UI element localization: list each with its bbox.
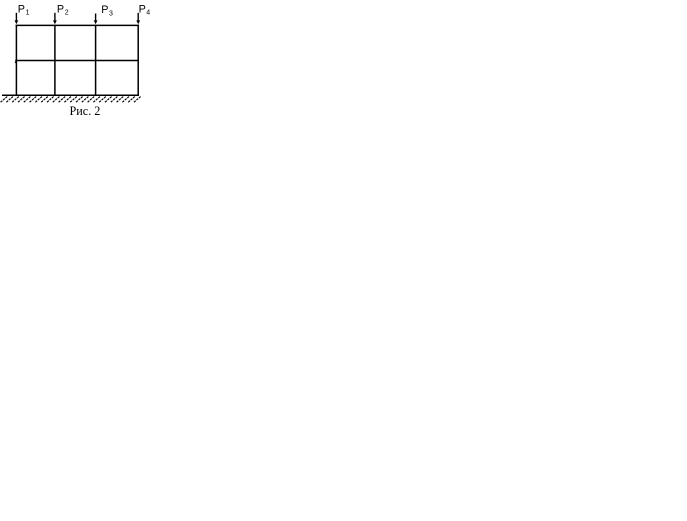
svg-text:P: P [18,3,25,15]
svg-text:3: 3 [109,11,113,18]
svg-text:1: 1 [26,10,30,17]
svg-text:4: 4 [146,10,150,17]
svg-text:2: 2 [65,10,69,17]
svg-text:P: P [57,3,64,15]
svg-text:Рис. 2: Рис. 2 [70,104,101,118]
svg-text:P: P [139,3,146,15]
svg-text:P: P [101,4,108,16]
